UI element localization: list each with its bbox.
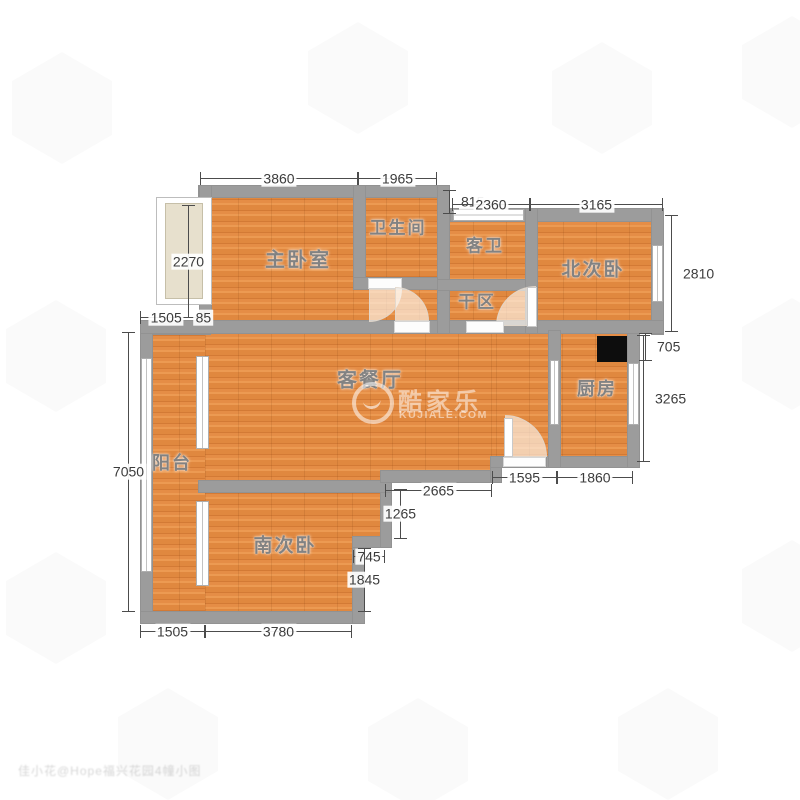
- background-logo-watermark-icon: [742, 540, 800, 652]
- wall-top-left: [198, 185, 450, 198]
- door-leaf-entry: [504, 418, 513, 457]
- room-label-bathroom: 卫生间: [370, 214, 427, 239]
- dim-2360: 2360: [452, 198, 530, 211]
- wall-bottom: [140, 611, 365, 624]
- dim-1860-label: 1860: [577, 469, 612, 485]
- dim-3860: 3860: [200, 172, 358, 185]
- dim-3860-label: 3860: [261, 170, 296, 186]
- dim-2665-label: 2665: [421, 482, 456, 498]
- window-north-bedroom-icon: [652, 245, 663, 302]
- room-label-kitchen: 厨房: [577, 375, 617, 401]
- room-label-dry-area: 干区: [458, 288, 496, 313]
- dim-3165: 3165: [530, 198, 663, 211]
- background-logo-watermark-icon: [6, 552, 106, 664]
- passage-dry-area: [466, 321, 504, 333]
- dim-3780: 3780: [205, 625, 352, 638]
- background-logo-watermark-icon: [12, 52, 112, 164]
- background-logo-watermark-icon: [742, 16, 800, 128]
- dim-3265-label: 3265: [653, 390, 688, 406]
- dim-1265-label: 1265: [383, 506, 418, 522]
- dim-1505-top-label: 1505: [149, 309, 184, 325]
- wall-south-top: [198, 480, 392, 493]
- dim-85-label: 85: [194, 309, 214, 325]
- dim-7050-label: 7050: [111, 464, 146, 480]
- sliding-door-balcony-living-icon: [196, 356, 209, 449]
- background-logo-watermark-icon: [118, 688, 218, 800]
- dim-1860: 1860: [557, 471, 633, 484]
- watermark-site-text: KUJIALE.COM: [399, 409, 488, 421]
- dim-1505-top: 1505 85: [140, 311, 205, 324]
- kujiale-logo-icon: [352, 382, 394, 424]
- dim-2270-label: 2270: [171, 253, 206, 269]
- dim-2360-label: 2360: [473, 196, 508, 212]
- dim-2810: 2810: [665, 215, 678, 332]
- room-label-master-bedroom: 主卧室: [265, 244, 331, 273]
- kujiale-smile-icon: [362, 395, 382, 410]
- background-logo-watermark-icon: [552, 42, 652, 154]
- sliding-door-balcony-south-icon: [196, 501, 209, 586]
- dim-1265: 1265: [394, 489, 407, 539]
- room-label-north-bedroom: 北次卧: [561, 255, 624, 282]
- background-logo-watermark-icon: [742, 298, 800, 410]
- background-logo-watermark-icon: [6, 300, 106, 412]
- background-logo-watermark-icon: [618, 688, 718, 800]
- door-threshold-hall: [394, 321, 430, 333]
- dim-1965-label: 1965: [380, 170, 415, 186]
- door-threshold-entry: [503, 457, 546, 467]
- dim-2810-label: 2810: [681, 265, 716, 281]
- dim-1845-label: 1845: [347, 572, 382, 588]
- watermark-corner-text: 佳小花@Hope福兴花园4幢小图: [18, 762, 202, 779]
- dim-2270: 2270: [182, 205, 195, 318]
- dim-1595: 1595: [492, 471, 557, 484]
- wall-bath-divider: [353, 185, 366, 283]
- dim-1505-bottom-label: 1505: [155, 623, 190, 639]
- room-label-guest-bathroom: 客卫: [466, 232, 504, 257]
- dim-3265: 3265: [637, 335, 650, 462]
- floor-plan-canvas: 主卧室 卫生间 客卫 北次卧 干区 客餐厅 厨房 阳台 南次卧 3860 196…: [0, 0, 800, 800]
- dim-1505-bottom: 1505: [140, 625, 205, 638]
- dim-1965: 1965: [358, 172, 437, 185]
- background-logo-watermark-icon: [308, 22, 408, 134]
- dim-3780-label: 3780: [261, 623, 296, 639]
- room-label-balcony: 阳台: [152, 449, 192, 475]
- window-kitchen-left-icon: [550, 360, 559, 425]
- flue-duct-icon: [597, 336, 627, 362]
- background-logo-watermark-icon: [368, 698, 468, 800]
- wall-living-bottom: [380, 470, 502, 483]
- dim-705-label: 705: [655, 339, 682, 355]
- dim-1845: 1845: [358, 548, 371, 612]
- door-leaf-north-bedroom: [527, 287, 537, 327]
- dim-7050: 7050: [122, 332, 135, 612]
- dim-3165-label: 3165: [579, 196, 614, 212]
- dim-1595-label: 1595: [507, 469, 542, 485]
- room-label-south-bedroom: 南次卧: [253, 531, 316, 558]
